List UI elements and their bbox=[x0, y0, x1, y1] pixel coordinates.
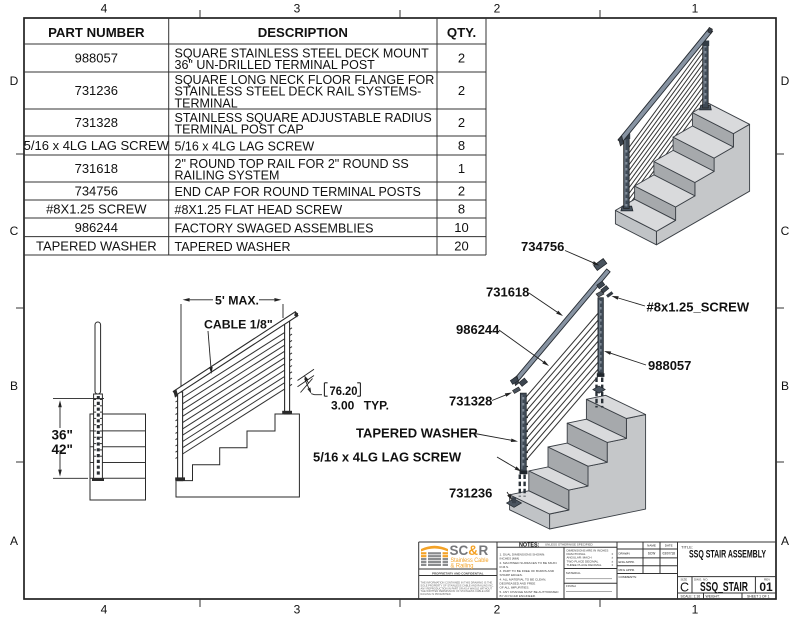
svg-text:TAPERED WASHER: TAPERED WASHER bbox=[175, 240, 291, 254]
svg-text:NOTES:: NOTES: bbox=[519, 543, 540, 549]
svg-text:731328: 731328 bbox=[449, 394, 492, 409]
svg-text:RAILING SYSTEM: RAILING SYSTEM bbox=[175, 169, 280, 183]
svg-text:ENG APPR.: ENG APPR. bbox=[619, 560, 635, 564]
svg-text:731618: 731618 bbox=[75, 161, 118, 176]
svg-text:NAME: NAME bbox=[647, 543, 656, 547]
svg-text:5' MAX.: 5' MAX. bbox=[215, 293, 259, 307]
svg-text:20: 20 bbox=[454, 238, 468, 253]
svg-text:3: 3 bbox=[294, 2, 301, 16]
svg-text:A: A bbox=[781, 534, 789, 548]
svg-text:734756: 734756 bbox=[521, 239, 564, 254]
svg-text:42": 42" bbox=[52, 442, 73, 457]
svg-text:986244: 986244 bbox=[456, 322, 500, 337]
svg-text:731236: 731236 bbox=[75, 83, 118, 98]
svg-text:DRAWN: DRAWN bbox=[619, 552, 630, 556]
svg-text:1: 1 bbox=[692, 603, 699, 617]
svg-text:UNLESS OTHERWISE SPECIFIED: UNLESS OTHERWISE SPECIFIED bbox=[545, 543, 593, 547]
svg-text:1: 1 bbox=[458, 161, 465, 176]
svg-text:731618: 731618 bbox=[486, 285, 529, 300]
svg-text:B: B bbox=[781, 379, 789, 393]
svg-text:PROPRIETARY AND CONFIDENTIAL: PROPRIETARY AND CONFIDENTIAL bbox=[432, 571, 484, 575]
svg-text:#8x1.25_SCREW: #8x1.25_SCREW bbox=[647, 300, 750, 315]
svg-text:THREE PLACE DECIMAL: THREE PLACE DECIMAL bbox=[567, 563, 602, 567]
svg-text:BY AN SC&R ENGINEER.: BY AN SC&R ENGINEER. bbox=[500, 594, 537, 598]
svg-text:4: 4 bbox=[101, 603, 108, 617]
svg-text:CABLE 1/8": CABLE 1/8" bbox=[204, 318, 273, 332]
svg-text:FINISH: FINISH bbox=[566, 584, 576, 588]
svg-text:36": 36" bbox=[52, 428, 73, 443]
svg-text:FACTORY SWAGED ASSEMBLIES: FACTORY SWAGED ASSEMBLIES bbox=[175, 222, 374, 236]
svg-text:MATERIAL: MATERIAL bbox=[566, 571, 581, 575]
svg-text:8: 8 bbox=[458, 138, 465, 153]
svg-text:2: 2 bbox=[458, 51, 465, 66]
svg-text:RAILING IS PROHIBITED.: RAILING IS PROHIBITED. bbox=[421, 592, 452, 596]
svg-text:731236: 731236 bbox=[449, 486, 492, 501]
svg-text:D: D bbox=[781, 74, 790, 88]
svg-text:731328: 731328 bbox=[75, 115, 118, 130]
svg-text:SCW: SCW bbox=[648, 552, 655, 556]
svg-text:&: & bbox=[468, 543, 478, 558]
svg-text:DESCRIPTION: DESCRIPTION bbox=[258, 25, 348, 40]
svg-text:2: 2 bbox=[494, 603, 501, 617]
svg-text:C: C bbox=[781, 224, 790, 238]
svg-text:36" UN-DRILLED TERMINAL POST: 36" UN-DRILLED TERMINAL POST bbox=[175, 58, 376, 72]
svg-text:PART NUMBER: PART NUMBER bbox=[48, 25, 145, 40]
svg-text:B: B bbox=[10, 379, 18, 393]
svg-text:1: 1 bbox=[692, 2, 699, 16]
svg-text:TAPERED WASHER: TAPERED WASHER bbox=[356, 426, 478, 441]
svg-text:COMMENTS:: COMMENTS: bbox=[619, 575, 637, 579]
svg-text:SHEET 1 OF 1: SHEET 1 OF 1 bbox=[747, 594, 770, 598]
svg-text:A: A bbox=[10, 534, 18, 548]
svg-text:988057: 988057 bbox=[75, 51, 118, 66]
svg-text:C: C bbox=[10, 224, 19, 238]
svg-text:03/07/18: 03/07/18 bbox=[662, 552, 675, 556]
svg-text:2: 2 bbox=[458, 115, 465, 130]
svg-text:76.20: 76.20 bbox=[330, 384, 358, 398]
svg-text:986244: 986244 bbox=[75, 220, 118, 235]
svg-text:C: C bbox=[680, 581, 689, 595]
svg-text:DATE: DATE bbox=[665, 543, 673, 547]
svg-text:3: 3 bbox=[294, 603, 301, 617]
svg-text:5/16 x 4LG LAG SCREW: 5/16 x 4LG LAG SCREW bbox=[175, 140, 315, 154]
svg-text:WEIGHT:: WEIGHT: bbox=[706, 594, 720, 598]
svg-text:#8X1.25 SCREW: #8X1.25 SCREW bbox=[46, 202, 147, 217]
svg-text:734756: 734756 bbox=[75, 184, 118, 199]
svg-text:& Railing: & Railing bbox=[451, 563, 474, 570]
svg-text:SSQ_STAIR: SSQ_STAIR bbox=[700, 580, 748, 594]
svg-text:#8X1.25 FLAT HEAD SCREW: #8X1.25 FLAT HEAD SCREW bbox=[175, 203, 343, 217]
svg-text:TERMINAL POST CAP: TERMINAL POST CAP bbox=[175, 123, 304, 137]
svg-text:D: D bbox=[10, 74, 19, 88]
svg-text:2: 2 bbox=[494, 2, 501, 16]
svg-text:10: 10 bbox=[454, 220, 468, 235]
svg-text:SCALE: 1:16: SCALE: 1:16 bbox=[681, 594, 701, 598]
svg-text:SC: SC bbox=[450, 543, 469, 558]
svg-text:5/16 x 4LG LAG SCREW: 5/16 x 4LG LAG SCREW bbox=[313, 450, 462, 465]
svg-text:5/16 x 4LG LAG SCREW: 5/16 x 4LG LAG SCREW bbox=[24, 138, 170, 153]
svg-text:TAPERED WASHER: TAPERED WASHER bbox=[36, 238, 157, 253]
svg-text:QTY.: QTY. bbox=[447, 25, 476, 40]
svg-text:01: 01 bbox=[759, 580, 773, 594]
svg-text:MFG APPR.: MFG APPR. bbox=[619, 568, 636, 572]
svg-text:SSQ STAIR ASSEMBLY: SSQ STAIR ASSEMBLY bbox=[689, 549, 766, 561]
svg-text:4: 4 bbox=[101, 2, 108, 16]
svg-text:988057: 988057 bbox=[648, 358, 691, 373]
svg-text:2: 2 bbox=[458, 83, 465, 98]
svg-text:8: 8 bbox=[458, 202, 465, 217]
svg-text:R: R bbox=[479, 543, 489, 558]
svg-text:END CAP FOR ROUND TERMINAL POS: END CAP FOR ROUND TERMINAL POSTS bbox=[175, 185, 421, 199]
svg-text:TYP.: TYP. bbox=[364, 399, 389, 413]
svg-text:3.00: 3.00 bbox=[331, 399, 355, 413]
svg-text:TERMINAL: TERMINAL bbox=[175, 96, 238, 110]
svg-text:2: 2 bbox=[458, 184, 465, 199]
